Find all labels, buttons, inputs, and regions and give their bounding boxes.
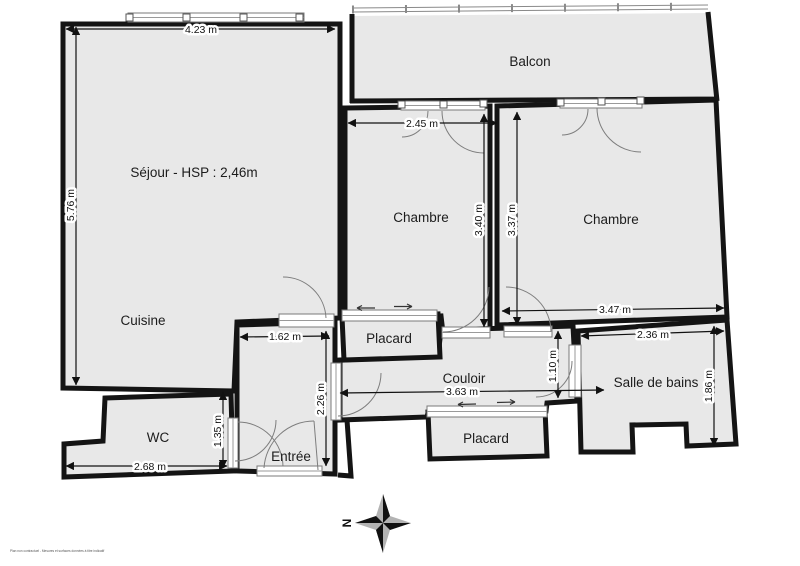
dim-label: 3.63 m: [446, 386, 478, 398]
dim-label: 3.47 m: [599, 304, 631, 316]
dim-label: 5.76 m: [65, 189, 77, 221]
dim-label: 3.40 m: [473, 204, 485, 236]
sejour-label: Séjour - HSP : 2,46m: [130, 165, 257, 180]
cuisine-label: Cuisine: [120, 313, 165, 328]
dim-label: 1.10 m: [547, 350, 559, 382]
dim-label: 1.35 m: [212, 415, 224, 447]
dim-label: 2.36 m: [637, 329, 669, 341]
dim-label: 2.26 m: [315, 383, 327, 415]
floor-plan-page: 4.23 m 5.76 m 2.45 m 3.40 m 3.37 m 3.47 …: [0, 0, 800, 566]
entree-exterior-jog-wall: [338, 420, 351, 476]
fine-print: Plan non contractuel - Mesures et surfac…: [10, 549, 104, 553]
chambre-right-label: Chambre: [583, 212, 639, 227]
dim-label: 4.23 m: [185, 24, 217, 36]
entree-label: Entrée: [271, 449, 311, 464]
sejour-window: [126, 13, 304, 22]
compass-north-label: N: [340, 519, 354, 528]
chambre-left-label: Chambre: [393, 210, 449, 225]
compass-rose-icon: N: [340, 494, 411, 553]
balcon-label: Balcon: [509, 54, 550, 69]
dim-label: 2.45 m: [406, 118, 438, 130]
wc-label: WC: [147, 430, 170, 445]
floor-plan-drawing: 4.23 m 5.76 m 2.45 m 3.40 m 3.37 m 3.47 …: [0, 0, 800, 566]
salle-de-bains-label: Salle de bains: [614, 375, 699, 390]
dim-label: 3.37 m: [506, 204, 518, 236]
dim-label: 1.86 m: [703, 370, 715, 402]
couloir-label: Couloir: [443, 371, 486, 386]
placard-lower-label: Placard: [463, 431, 509, 446]
placard-upper-label: Placard: [366, 331, 412, 346]
dim-label: 1.62 m: [269, 331, 301, 343]
dim-label: 2.68 m: [134, 461, 166, 473]
